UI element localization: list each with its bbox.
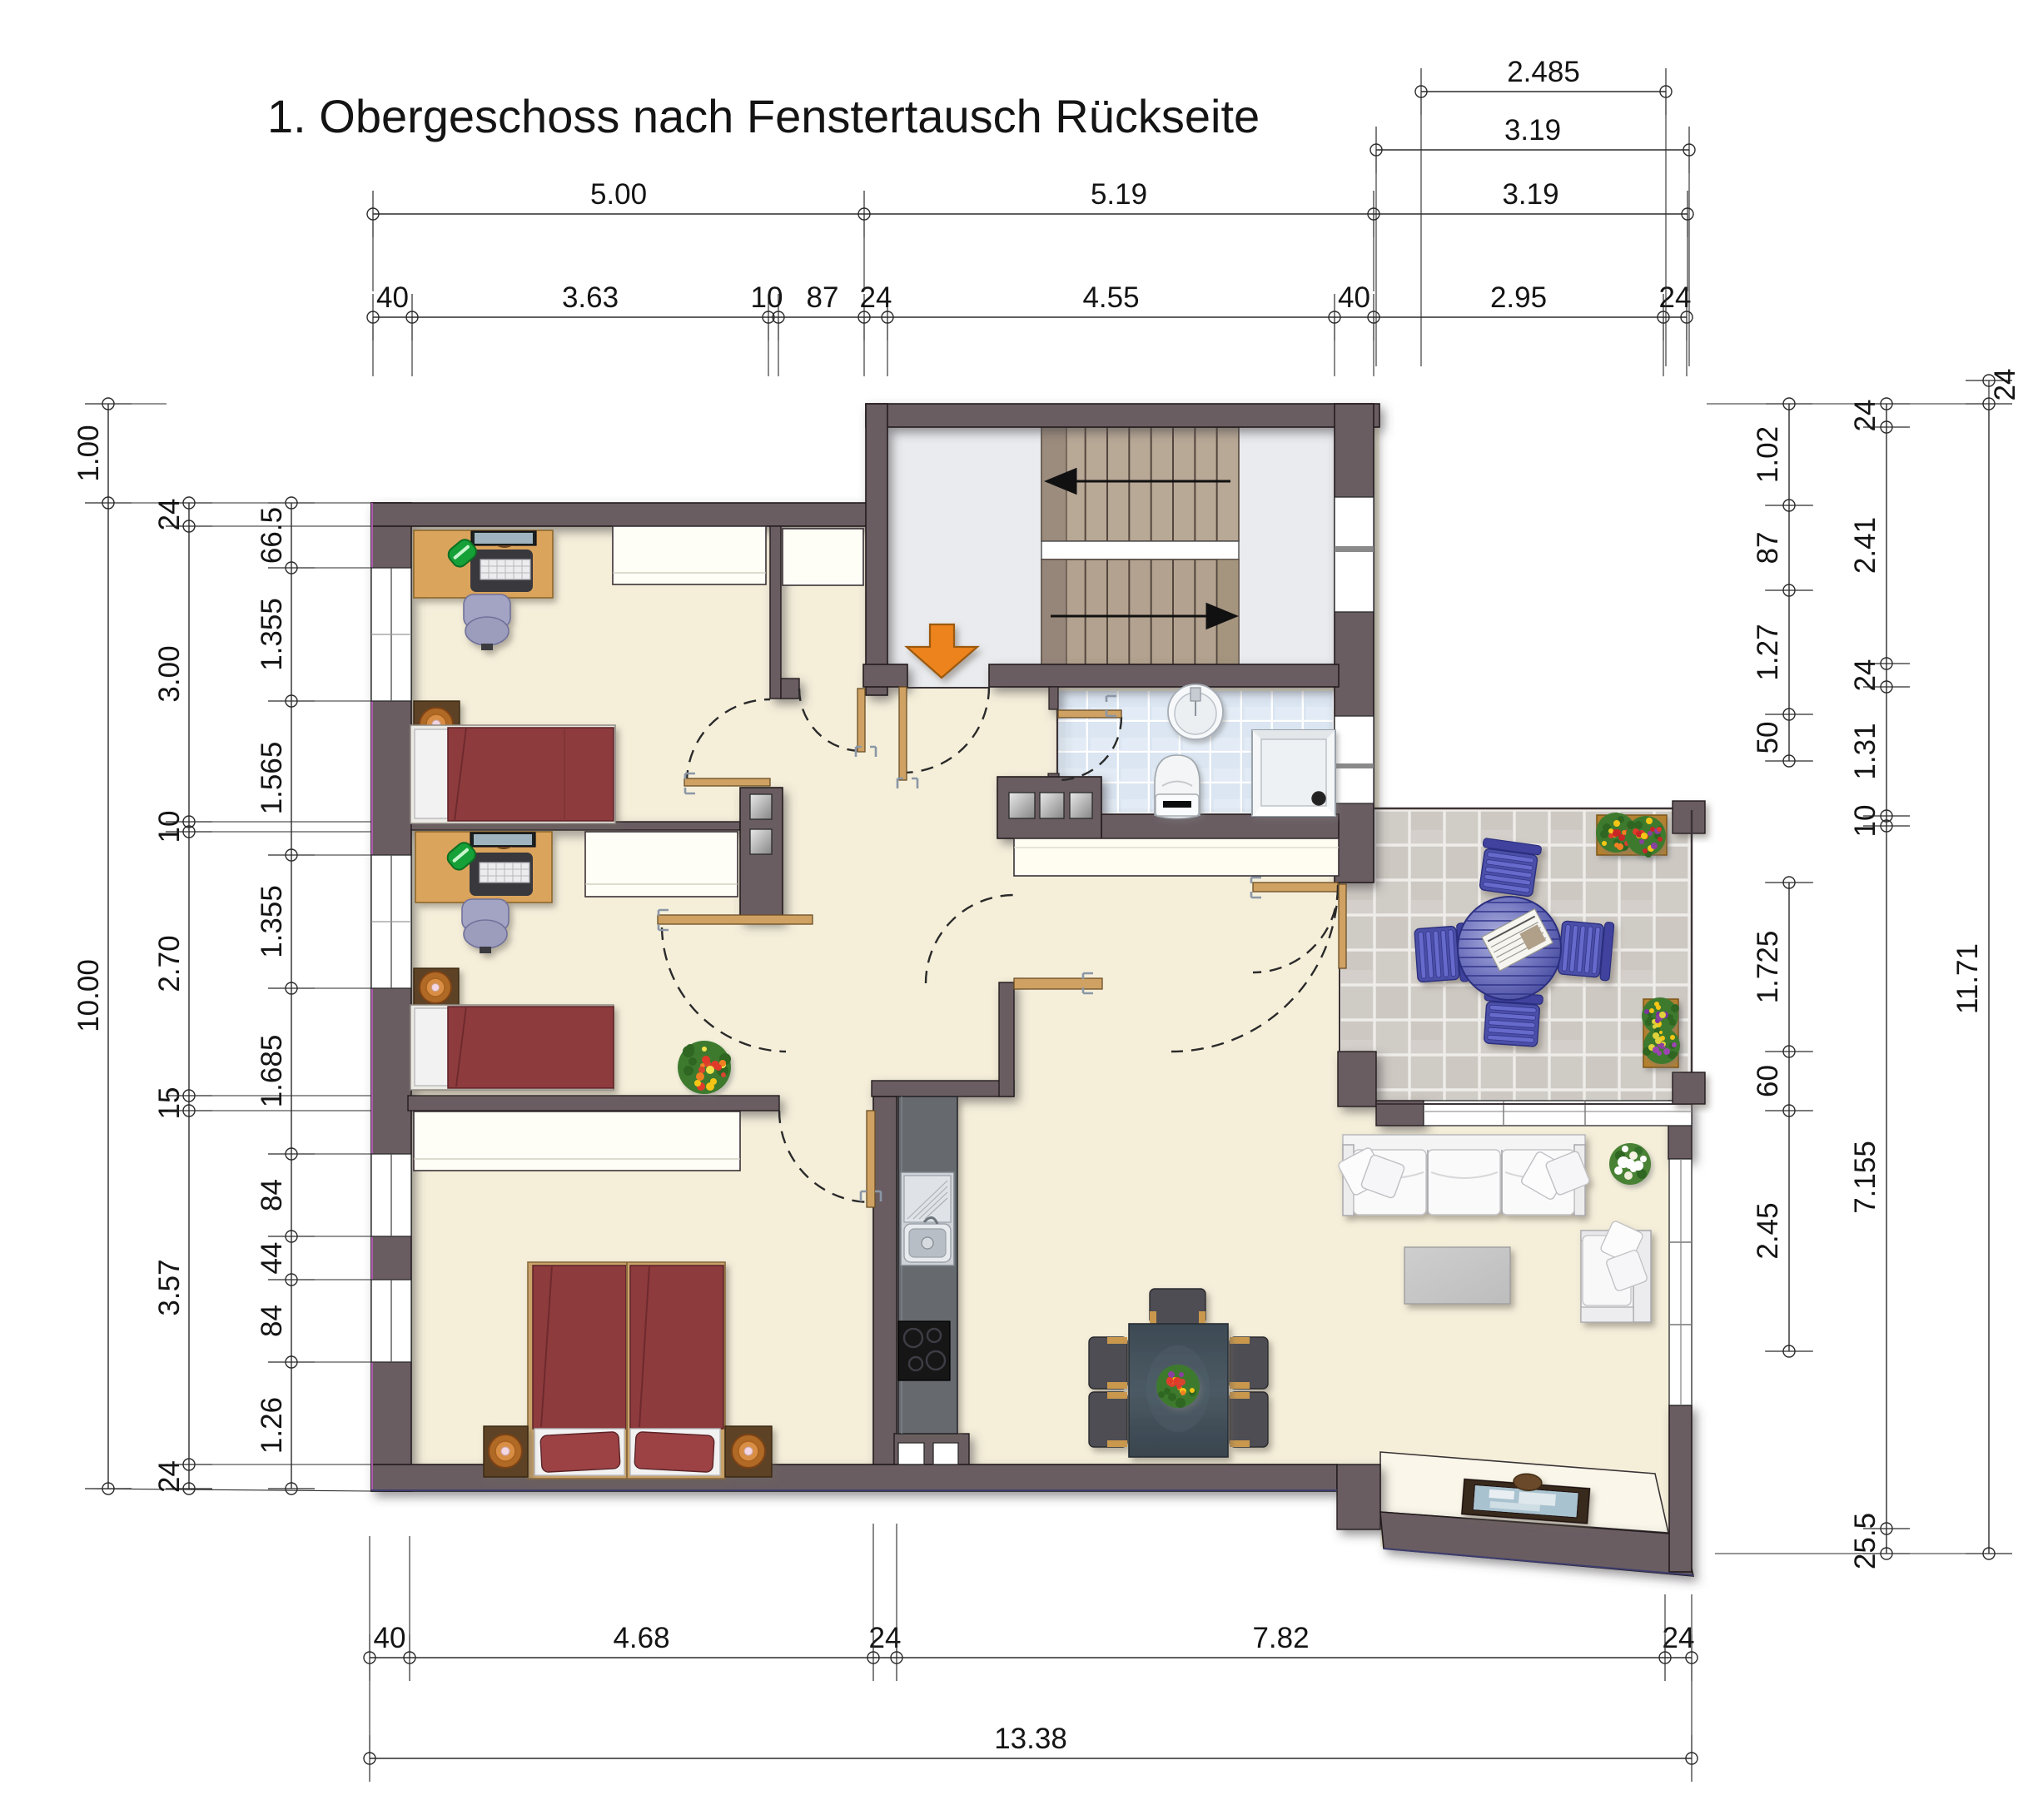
svg-text:1.02: 1.02: [1752, 426, 1784, 483]
svg-text:24: 24: [1659, 281, 1692, 314]
svg-text:7.82: 7.82: [1252, 1622, 1309, 1654]
svg-text:13.38: 13.38: [994, 1723, 1067, 1755]
svg-text:84: 84: [256, 1305, 288, 1337]
svg-text:5.19: 5.19: [1091, 178, 1147, 211]
svg-text:87: 87: [807, 281, 839, 314]
svg-text:1.355: 1.355: [256, 885, 288, 958]
svg-text:2.41: 2.41: [1849, 517, 1881, 574]
svg-text:1.31: 1.31: [1849, 723, 1881, 779]
svg-text:1.725: 1.725: [1752, 931, 1784, 1004]
svg-text:1.355: 1.355: [256, 598, 288, 671]
svg-text:24: 24: [1663, 1622, 1695, 1654]
svg-text:2.95: 2.95: [1490, 281, 1547, 314]
svg-text:3.19: 3.19: [1504, 114, 1561, 147]
svg-text:40: 40: [374, 1622, 406, 1654]
svg-text:1.26: 1.26: [256, 1397, 288, 1454]
svg-text:25.5: 25.5: [1849, 1513, 1881, 1569]
svg-text:66.5: 66.5: [256, 507, 288, 564]
svg-text:10: 10: [1849, 805, 1881, 838]
svg-text:2.45: 2.45: [1752, 1202, 1784, 1259]
svg-text:5.00: 5.00: [590, 178, 647, 211]
svg-text:11.71: 11.71: [1951, 943, 1984, 1014]
svg-text:1. Obergeschoss nach Fensterta: 1. Obergeschoss nach Fenstertausch Rücks…: [267, 90, 1260, 142]
svg-text:15: 15: [153, 1087, 186, 1120]
svg-text:3.00: 3.00: [153, 645, 186, 702]
svg-text:4.68: 4.68: [613, 1622, 669, 1654]
svg-text:2.485: 2.485: [1507, 56, 1580, 88]
svg-text:84: 84: [256, 1179, 288, 1211]
svg-text:44: 44: [256, 1242, 288, 1275]
svg-text:10: 10: [153, 811, 186, 843]
svg-text:3.63: 3.63: [562, 281, 619, 314]
svg-text:40: 40: [376, 281, 409, 314]
svg-text:1.27: 1.27: [1752, 624, 1784, 680]
svg-text:60: 60: [1752, 1065, 1784, 1097]
svg-text:50: 50: [1752, 722, 1784, 754]
svg-text:87: 87: [1752, 532, 1784, 564]
svg-text:1.685: 1.685: [256, 1035, 288, 1108]
svg-text:24: 24: [1989, 369, 2021, 401]
svg-text:10: 10: [751, 281, 783, 314]
svg-text:7.155: 7.155: [1849, 1141, 1881, 1214]
svg-text:40: 40: [1338, 281, 1370, 314]
svg-text:3.57: 3.57: [153, 1259, 186, 1315]
svg-text:1.565: 1.565: [256, 742, 288, 815]
svg-text:10.00: 10.00: [72, 959, 105, 1032]
svg-text:2.70: 2.70: [153, 935, 186, 992]
svg-text:4.55: 4.55: [1082, 281, 1139, 314]
svg-text:1.00: 1.00: [72, 425, 105, 481]
svg-text:24: 24: [153, 1460, 186, 1493]
svg-text:3.19: 3.19: [1502, 178, 1558, 211]
